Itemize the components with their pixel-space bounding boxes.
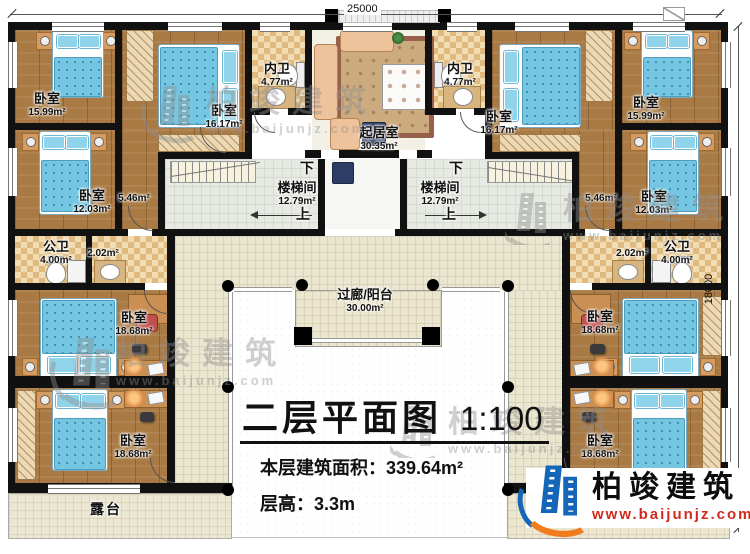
knob-icon bbox=[112, 395, 122, 405]
page-title: 二层平面图 bbox=[242, 400, 442, 436]
room-name: 卧室 bbox=[635, 190, 672, 205]
sliding-door bbox=[48, 484, 140, 494]
window bbox=[168, 22, 222, 32]
floor-area-label: 本层建筑面积： bbox=[260, 458, 386, 478]
window bbox=[260, 22, 290, 32]
pillow bbox=[660, 394, 684, 408]
column bbox=[296, 279, 308, 291]
wall bbox=[8, 376, 167, 388]
knob-icon bbox=[702, 137, 712, 147]
tv bbox=[132, 344, 147, 354]
stair-r-up-label: 上 bbox=[442, 207, 456, 223]
mark-windows bbox=[546, 469, 555, 509]
room-label-bedroom-tr: 卧室15.99m² bbox=[627, 96, 664, 122]
wall bbox=[485, 152, 579, 159]
duvet bbox=[42, 300, 115, 354]
bed bbox=[52, 389, 108, 471]
room-area: 18.68m² bbox=[581, 449, 618, 460]
window bbox=[447, 22, 477, 32]
room-area: 12.03m² bbox=[635, 205, 672, 216]
pillow bbox=[651, 136, 673, 149]
column bbox=[502, 280, 514, 292]
walkway-railing-top-l bbox=[234, 287, 292, 292]
pillow bbox=[663, 357, 692, 373]
porch-pillar bbox=[325, 9, 338, 22]
room-name: 露台 bbox=[90, 502, 122, 518]
knob-icon bbox=[697, 36, 707, 46]
floor-plan: 25000 18000 卧室15.99m² 卧室16.17m² 内卫4.77m²… bbox=[0, 0, 750, 554]
knob-icon bbox=[690, 395, 700, 405]
window bbox=[721, 148, 731, 196]
company-logo-text: 柏竣建筑 www.baijunjz.com bbox=[592, 473, 750, 523]
wall bbox=[115, 130, 122, 229]
tv bbox=[590, 344, 605, 354]
nightstand bbox=[686, 391, 703, 409]
room-name: 楼梯间 bbox=[277, 181, 316, 196]
pillow bbox=[56, 394, 80, 408]
wall bbox=[417, 150, 432, 158]
mark-windows bbox=[568, 481, 573, 512]
wall bbox=[288, 108, 312, 115]
floor-height-label: 层高： bbox=[260, 494, 314, 514]
nightstand bbox=[108, 391, 125, 409]
room-label-hall-l2: 2.02m² bbox=[87, 248, 119, 259]
nightstand bbox=[36, 391, 53, 409]
column bbox=[502, 381, 514, 393]
room-name: 过廊/阳台 bbox=[337, 288, 393, 303]
wall bbox=[115, 22, 122, 130]
floor-area-line: 本层建筑面积：339.64m² bbox=[260, 454, 549, 480]
wall bbox=[645, 236, 651, 283]
stair-slash bbox=[488, 167, 577, 182]
nightstand bbox=[630, 133, 647, 151]
window bbox=[8, 148, 18, 196]
room-area: 18.68m² bbox=[115, 326, 152, 337]
nightstand bbox=[693, 32, 710, 50]
bed bbox=[40, 298, 117, 378]
knob-icon bbox=[40, 395, 50, 405]
room-area: 5.46m² bbox=[118, 193, 150, 204]
stair-treads bbox=[487, 161, 573, 183]
room-area: 2.02m² bbox=[616, 248, 648, 259]
nightstand bbox=[36, 32, 53, 50]
window bbox=[515, 22, 569, 32]
room-label-hall-l: 5.46m² bbox=[118, 193, 150, 204]
pillow bbox=[48, 357, 77, 373]
nightstand bbox=[698, 133, 715, 151]
walkway-railing-top-r bbox=[442, 287, 500, 292]
door-arc bbox=[254, 112, 275, 133]
tv bbox=[582, 412, 596, 422]
room-label-bedroom-l2: 卧室12.03m² bbox=[73, 189, 110, 215]
down-label: 下 bbox=[300, 161, 314, 177]
pillow bbox=[646, 35, 667, 48]
room-name: 卧室 bbox=[205, 104, 242, 119]
wall bbox=[570, 376, 721, 388]
sink bbox=[618, 264, 638, 280]
room-area: 4.77m² bbox=[261, 77, 293, 88]
lamp-glow bbox=[124, 356, 144, 376]
armchair bbox=[330, 118, 360, 150]
room-area: 12.03m² bbox=[73, 204, 110, 215]
room-label-hall-r: 5.46m² bbox=[585, 193, 617, 204]
wardrobe bbox=[17, 390, 36, 480]
room-name: 卧室 bbox=[480, 110, 517, 125]
bed bbox=[52, 30, 104, 98]
room-label-innerbath-l: 内卫4.77m² bbox=[261, 62, 293, 88]
wardrobe bbox=[702, 390, 721, 480]
wall bbox=[572, 159, 579, 229]
pillow bbox=[57, 35, 78, 48]
wall bbox=[318, 159, 325, 229]
column bbox=[427, 279, 439, 291]
bed bbox=[622, 298, 699, 378]
pillar bbox=[294, 327, 312, 345]
room-label-balcony: 过廊/阳台30.00m² bbox=[337, 288, 393, 314]
room-label-bedroom-tr2: 卧室16.17m² bbox=[480, 110, 517, 136]
company-name: 柏竣建筑 bbox=[592, 473, 750, 503]
wardrobe bbox=[126, 30, 154, 102]
room-label-bedroom-r2: 卧室12.03m² bbox=[635, 190, 672, 216]
room-area: 5.46m² bbox=[585, 193, 617, 204]
nightstand bbox=[624, 32, 641, 50]
room-label-innerbath-r: 内卫4.77m² bbox=[444, 62, 476, 88]
knob-icon bbox=[628, 36, 638, 46]
walkway-left bbox=[175, 290, 230, 493]
window bbox=[8, 42, 18, 88]
up-label: 上 bbox=[296, 207, 310, 223]
down-label: 下 bbox=[449, 161, 463, 177]
column bbox=[222, 280, 234, 292]
wall bbox=[8, 229, 128, 236]
room-label-bedroom-lb: 卧室18.68m² bbox=[114, 434, 151, 460]
knob-icon bbox=[106, 36, 116, 46]
room-area: 18.68m² bbox=[114, 449, 151, 460]
pillow bbox=[43, 136, 65, 149]
wall bbox=[8, 283, 145, 290]
wall bbox=[158, 152, 252, 159]
stair-r-label: 楼梯间12.79m² bbox=[420, 181, 459, 207]
wall bbox=[158, 159, 165, 229]
room-label-bedroom-rm: 卧室18.68m² bbox=[581, 310, 618, 336]
room-label-terrace: 露台 bbox=[90, 502, 122, 518]
room-name: 起居室 bbox=[359, 126, 398, 141]
closet bbox=[158, 134, 240, 152]
lamp-glow bbox=[592, 388, 612, 408]
hall-furniture bbox=[332, 162, 354, 184]
wall bbox=[167, 230, 175, 493]
nightstand bbox=[700, 358, 716, 376]
dimension-right-value: 18000 bbox=[703, 263, 715, 315]
room-name: 内卫 bbox=[444, 62, 476, 77]
window bbox=[8, 408, 18, 462]
room-name: 公卫 bbox=[661, 240, 693, 255]
wall bbox=[400, 159, 407, 229]
lamp-glow bbox=[592, 356, 612, 376]
room-label-bedroom-tl: 卧室15.99m² bbox=[28, 92, 65, 118]
pillow bbox=[66, 136, 88, 149]
wall bbox=[152, 229, 325, 236]
window bbox=[721, 408, 731, 462]
room-label-pubbath-r: 公卫4.00m² bbox=[661, 240, 693, 266]
knob-icon bbox=[618, 395, 628, 405]
wall bbox=[562, 230, 570, 493]
floor-height-value: 3.3m bbox=[314, 494, 355, 514]
window bbox=[721, 42, 731, 88]
column bbox=[222, 381, 234, 393]
pillow bbox=[81, 394, 105, 408]
closet bbox=[499, 134, 581, 152]
wall bbox=[615, 123, 721, 130]
nightstand bbox=[22, 133, 39, 151]
stair-arrow-head bbox=[479, 211, 487, 219]
room-area: 2.02m² bbox=[87, 248, 119, 259]
floor-area-value: 339.64m² bbox=[386, 458, 463, 478]
room-name: 卧室 bbox=[115, 311, 152, 326]
scale-value: 1:100 bbox=[460, 402, 543, 435]
duvet bbox=[522, 47, 580, 125]
room-area: 4.77m² bbox=[444, 77, 476, 88]
pillow bbox=[81, 357, 110, 373]
room-area: 15.99m² bbox=[28, 107, 65, 118]
wall bbox=[395, 229, 585, 236]
wall bbox=[485, 22, 492, 159]
balcony-railing bbox=[300, 338, 435, 343]
wall bbox=[305, 22, 312, 115]
company-logo: 柏竣建筑 www.baijunjz.com bbox=[526, 468, 750, 528]
company-website: www.baijunjz.com bbox=[592, 506, 750, 523]
dimension-top-value: 25000 bbox=[344, 3, 381, 15]
duvet bbox=[624, 300, 697, 354]
knob-icon bbox=[94, 137, 104, 147]
company-logo-icon bbox=[526, 466, 589, 531]
column bbox=[222, 484, 234, 496]
window bbox=[52, 22, 104, 32]
sink bbox=[266, 88, 286, 106]
mark-bar bbox=[563, 477, 577, 516]
room-area: 16.17m² bbox=[205, 119, 242, 130]
pillar bbox=[422, 327, 440, 345]
window bbox=[8, 300, 18, 356]
room-area: 4.00m² bbox=[661, 255, 693, 266]
sink bbox=[453, 88, 473, 106]
door-arc bbox=[460, 112, 481, 133]
room-name: 卧室 bbox=[581, 310, 618, 325]
tv bbox=[140, 412, 154, 422]
room-label-bedroom-rb: 卧室18.68m² bbox=[581, 434, 618, 460]
nightstand bbox=[614, 391, 631, 409]
sofa bbox=[340, 30, 394, 52]
nightstand bbox=[22, 358, 38, 376]
room-area: 30.35m² bbox=[359, 141, 398, 152]
wall bbox=[8, 123, 122, 130]
french-door bbox=[343, 22, 392, 32]
pillow bbox=[223, 51, 237, 83]
wall bbox=[245, 22, 252, 159]
wall bbox=[615, 22, 622, 130]
wall bbox=[609, 229, 721, 236]
sofa bbox=[314, 44, 338, 120]
wall bbox=[592, 283, 721, 290]
wardrobe bbox=[585, 30, 613, 102]
porch-pillar bbox=[438, 9, 451, 22]
floor-height-line: 层高：3.3m bbox=[260, 490, 549, 516]
title-row: 二层平面图 1:100 bbox=[240, 400, 549, 444]
knob-icon bbox=[634, 137, 644, 147]
dimension-line-right bbox=[738, 26, 739, 532]
room-label-living: 起居室30.35m² bbox=[359, 126, 398, 152]
duvet bbox=[54, 418, 106, 470]
knob-icon bbox=[25, 362, 35, 372]
room-name: 卧室 bbox=[581, 434, 618, 449]
up-label: 上 bbox=[442, 207, 456, 223]
room-name: 卧室 bbox=[28, 92, 65, 107]
coffee-table bbox=[382, 64, 426, 110]
pillow bbox=[79, 35, 100, 48]
window bbox=[721, 300, 731, 356]
bed bbox=[641, 30, 693, 98]
stair-l-down-label: 下 bbox=[300, 161, 314, 177]
bed bbox=[631, 389, 687, 471]
pillow bbox=[635, 394, 659, 408]
room-area: 4.00m² bbox=[40, 255, 72, 266]
room-area: 16.17m² bbox=[480, 125, 517, 136]
stair-l-up-label: 上 bbox=[296, 207, 310, 223]
knob-icon bbox=[40, 36, 50, 46]
stair-slash bbox=[171, 162, 260, 177]
sink bbox=[100, 264, 120, 280]
stair-r-down-label: 下 bbox=[449, 161, 463, 177]
room-label-bedroom-tl2: 卧室16.17m² bbox=[205, 104, 242, 130]
wall bbox=[86, 236, 92, 283]
stair-arrow-head bbox=[250, 211, 258, 219]
wall bbox=[615, 130, 622, 229]
room-area: 15.99m² bbox=[627, 111, 664, 122]
stair-l-label: 楼梯间12.79m² bbox=[277, 181, 316, 207]
room-name: 公卫 bbox=[40, 240, 72, 255]
duvet bbox=[633, 418, 685, 470]
room-label-pubbath-l: 公卫4.00m² bbox=[40, 240, 72, 266]
wall bbox=[425, 22, 432, 115]
room-name: 内卫 bbox=[261, 62, 293, 77]
knob-icon bbox=[26, 137, 36, 147]
room-area: 30.00m² bbox=[337, 303, 393, 314]
pillow bbox=[668, 35, 689, 48]
room-label-bedroom-lm: 卧室18.68m² bbox=[115, 311, 152, 337]
duvet bbox=[54, 57, 102, 97]
room-label-hall-r2: 2.02m² bbox=[616, 248, 648, 259]
title-block: 二层平面图 1:100 本层建筑面积：339.64m² 层高：3.3m bbox=[240, 400, 549, 516]
duvet bbox=[643, 57, 691, 97]
nightstand bbox=[90, 133, 107, 151]
pillow bbox=[674, 136, 696, 149]
lamp-glow bbox=[124, 388, 144, 408]
room-name: 卧室 bbox=[114, 434, 151, 449]
dimension-marker bbox=[663, 7, 685, 21]
room-name: 卧室 bbox=[627, 96, 664, 111]
pillow bbox=[504, 51, 518, 83]
wall bbox=[432, 108, 456, 115]
room-name: 楼梯间 bbox=[420, 181, 459, 196]
window bbox=[633, 22, 685, 32]
knob-icon bbox=[703, 362, 713, 372]
stair-treads bbox=[170, 161, 256, 183]
plant bbox=[392, 32, 404, 44]
wall bbox=[305, 150, 321, 158]
pillow bbox=[630, 357, 659, 373]
room-name: 卧室 bbox=[73, 189, 110, 204]
room-area: 18.68m² bbox=[581, 325, 618, 336]
